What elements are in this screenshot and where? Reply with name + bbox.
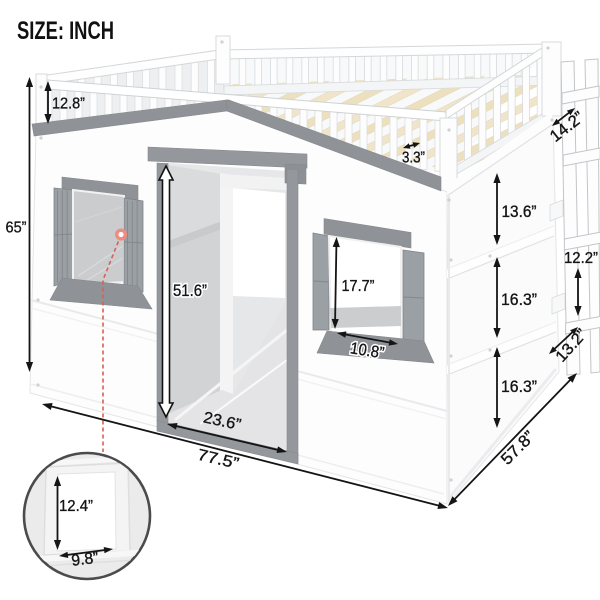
svg-text:17.7”: 17.7”: [342, 278, 375, 295]
svg-text:9.8”: 9.8”: [71, 550, 100, 570]
svg-text:16.3”: 16.3”: [501, 291, 537, 309]
svg-text:SIZE: INCH: SIZE: INCH: [17, 17, 114, 45]
svg-text:65”: 65”: [6, 220, 27, 237]
svg-text:3.3”: 3.3”: [402, 150, 425, 167]
svg-text:12.2”: 12.2”: [564, 250, 598, 267]
svg-text:12.4”: 12.4”: [59, 498, 93, 515]
svg-text:51.6”: 51.6”: [173, 282, 207, 300]
svg-text:16.3”: 16.3”: [501, 378, 537, 396]
svg-text:13.6”: 13.6”: [502, 203, 537, 221]
svg-text:12.8”: 12.8”: [52, 96, 85, 113]
